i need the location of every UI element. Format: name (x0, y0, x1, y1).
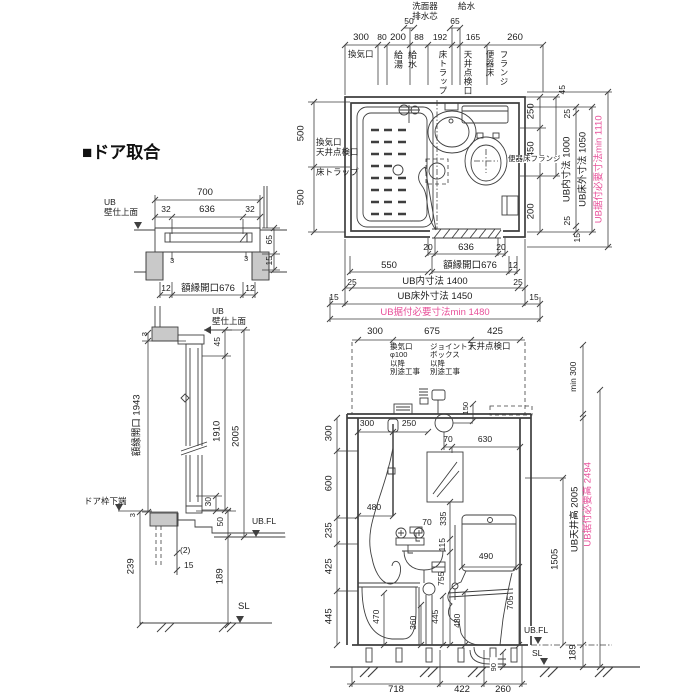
dim-32a: 32 (156, 205, 176, 215)
elev-left-dim: 600 (325, 469, 336, 497)
dimension-lines (118, 28, 612, 687)
dim-25-right: 25 (508, 278, 528, 288)
water-label: 給水 (406, 50, 419, 69)
dim-15-h: 15 (265, 251, 275, 271)
dim-189-e: 189 (569, 638, 580, 666)
dim-15: 15 (573, 228, 583, 248)
dim-70b: 70 (419, 518, 435, 528)
dim-480b: 480 (453, 607, 463, 635)
dim-490: 490 (472, 552, 500, 562)
dim-min300: min 300 (569, 355, 579, 399)
plan-top-dim: 260 (498, 33, 532, 44)
plan-top-dim: 88 (410, 33, 428, 43)
dim-700: 700 (188, 188, 222, 199)
dim-3-top: 3 (141, 328, 149, 340)
dim-45: 45 (558, 78, 568, 102)
dim-250: 250 (527, 93, 538, 129)
dim-12a-h: 12 (158, 284, 174, 294)
dim-12b-h: 12 (242, 284, 258, 294)
ceiling-port-label-e: 天井点検口 (468, 342, 518, 352)
trap-label: 床トラップ (316, 168, 362, 178)
toilet-floor-label: 便器床 (484, 50, 496, 77)
dim-90: 90 (490, 657, 498, 677)
drawing-sheet: ■ドア取合 洗面器 排水芯 給水 50 65 300 80 200 88 192… (0, 0, 696, 696)
dim-15-left: 15 (324, 293, 344, 303)
dim-50: 50 (400, 17, 418, 27)
elev-bottom-dim: 422 (444, 685, 480, 696)
ub-floor-1450: UB床外寸法 1450 (385, 292, 485, 303)
ub-ceiling-height: UB天井高 2005 (571, 472, 582, 566)
dim-25-left: 25 (342, 278, 362, 288)
dim-paren2: (2) (180, 546, 200, 556)
dim-20a: 20 (421, 243, 435, 253)
ub-required-dim-v: UB据付必要寸法min 1110 (595, 94, 606, 244)
ub-required-height: UB据付必要高 2494 (584, 449, 595, 559)
floor-trap-label: 床トラップ (437, 50, 449, 95)
vent-note: 換気口 φ100 以降 別途工事 (390, 343, 430, 377)
dim-25a: 25 (563, 102, 573, 126)
ub-floor-dim-v: UB床外寸法 1050 (579, 119, 590, 219)
frame-opening-676: 額縁開口676 (436, 261, 504, 272)
plan-top-dim: 192 (428, 33, 452, 43)
dim-45-v: 45 (213, 330, 223, 354)
elev-bottom-dim: 718 (378, 685, 414, 696)
dim-480a: 480 (360, 503, 388, 513)
ubfl-label-v: UB.FL (252, 517, 288, 527)
ubfl-label-e: UB.FL (524, 626, 558, 636)
dim-189-v: 189 (216, 558, 227, 594)
elev-bottom-dim: 260 (485, 685, 521, 696)
dim-30: 30 (204, 492, 214, 512)
ub-inner-dim-v: UB内寸法 1000 (563, 124, 574, 214)
dim-445-e: 445 (431, 603, 441, 631)
wall-finish-label-v: UB 壁仕上面 (212, 307, 258, 326)
vent-port-label: 換気口 天井点検口 (316, 138, 362, 157)
door-v-section (140, 306, 285, 632)
toilet-flange-label: 便器床フランジ (508, 155, 566, 163)
elev-left-dim: 445 (325, 602, 336, 630)
dim-70a: 70 (440, 435, 456, 445)
section-title: ■ドア取合 (82, 138, 160, 163)
frame-opening-676-h: 額縁開口676 (178, 284, 238, 295)
dim-360: 360 (409, 609, 419, 637)
dim-25b: 25 (563, 209, 573, 233)
elev-left-dim: 235 (325, 516, 336, 544)
elev-top-dim: 425 (478, 327, 512, 338)
sl-label-v: SL (238, 602, 258, 613)
dim-15-right: 15 (524, 293, 544, 303)
dim-3-sill: 3 (129, 509, 137, 521)
dim-470: 470 (372, 603, 382, 631)
dim-1505: 1505 (551, 541, 562, 577)
dim-115: 115 (438, 531, 448, 559)
hot-water-label: 給湯 (392, 50, 405, 69)
dim-630: 630 (470, 435, 500, 445)
dim-65-h: 65 (265, 228, 275, 252)
plan-top-dim: 200 (385, 33, 411, 44)
elev-left-dim: 300 (325, 419, 336, 447)
dim-239: 239 (127, 548, 138, 584)
supply-label: 給水 (458, 2, 480, 12)
dim-200: 200 (527, 193, 538, 229)
dim-705: 705 (506, 589, 516, 617)
dim-in250: 250 (394, 419, 424, 429)
door-frame-bottom-label: ドア枠下端 (84, 497, 140, 507)
dim-20b: 20 (494, 243, 508, 253)
dim-755: 755 (437, 565, 447, 593)
ceiling-port-label: 天井点検口 (462, 50, 474, 95)
ub-inner-1400: UB内寸法 1400 (390, 277, 480, 288)
dim-in300: 300 (352, 419, 382, 429)
dim-2005: 2005 (232, 418, 243, 454)
drawing-canvas (0, 0, 696, 696)
dim-1910: 1910 (213, 413, 224, 449)
sl-label-e: SL (532, 649, 552, 659)
elev-left-dim: 425 (325, 552, 336, 580)
dim-550: 550 (374, 261, 404, 272)
wall-finish-label: UB 壁仕上面 (104, 198, 150, 217)
dim-50-v: 50 (216, 512, 226, 532)
plan-top-dim: 165 (460, 33, 486, 43)
dim-500-upper: 500 (297, 115, 308, 151)
dim-32b: 32 (240, 205, 260, 215)
elev-top-dim: 300 (358, 327, 392, 338)
vent-label: 換気口 (348, 50, 374, 60)
dim-636-h: 636 (190, 205, 224, 216)
frame-opening-1943: 額縁開口 1943 (133, 380, 144, 470)
dim-500-lower: 500 (297, 179, 308, 215)
ub-required-1480: UB据付必要寸法min 1480 (355, 308, 515, 319)
dim-636: 636 (446, 243, 486, 254)
plan-fixtures (357, 103, 518, 238)
dim-15-v: 15 (184, 561, 200, 571)
dim-12: 12 (505, 261, 521, 271)
dim-150: 150 (462, 398, 470, 418)
dim-3b: 3 (244, 255, 254, 263)
flange-label: フランジ (498, 50, 510, 86)
tub-antislip-pattern (371, 130, 406, 214)
elev-top-dim: 675 (415, 327, 449, 338)
dim-65: 65 (446, 17, 464, 27)
dim-3a: 3 (170, 257, 180, 265)
dim-335: 335 (439, 505, 449, 533)
